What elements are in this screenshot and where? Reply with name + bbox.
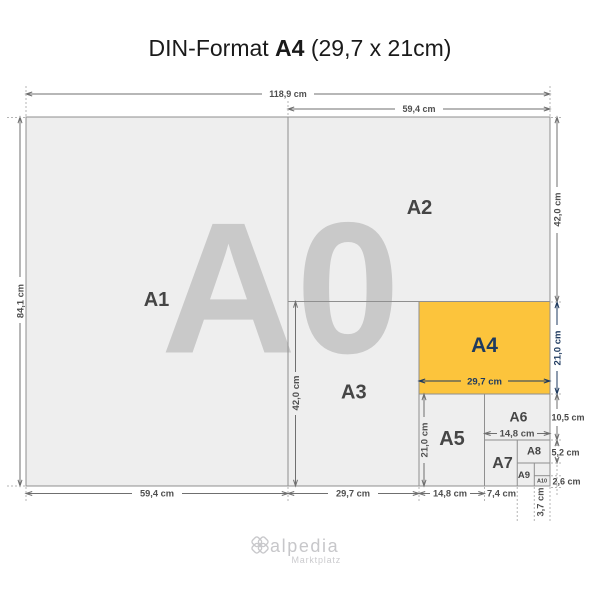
svg-text:2,6 cm: 2,6 cm bbox=[553, 477, 581, 487]
svg-text:A1: A1 bbox=[144, 289, 170, 311]
svg-text:29,7 cm: 29,7 cm bbox=[336, 489, 370, 499]
svg-text:A0: A0 bbox=[161, 184, 400, 393]
svg-text:3,7 cm: 3,7 cm bbox=[536, 488, 546, 517]
svg-text:10,5 cm: 10,5 cm bbox=[552, 413, 585, 423]
svg-text:14,8 cm: 14,8 cm bbox=[433, 489, 467, 499]
svg-text:7,4 cm: 7,4 cm bbox=[487, 489, 516, 499]
svg-text:59,4 cm: 59,4 cm bbox=[140, 489, 174, 499]
svg-text:14,8 cm: 14,8 cm bbox=[500, 429, 535, 440]
svg-text:42,0 cm: 42,0 cm bbox=[291, 376, 302, 411]
svg-text:A2: A2 bbox=[407, 197, 433, 219]
svg-text:42,0 cm: 42,0 cm bbox=[553, 192, 563, 226]
svg-text:5,2 cm: 5,2 cm bbox=[552, 448, 580, 458]
svg-text:21,0 cm: 21,0 cm bbox=[553, 331, 564, 366]
svg-text:A10: A10 bbox=[537, 478, 547, 484]
svg-text:A3: A3 bbox=[341, 382, 367, 404]
svg-text:118,9 cm: 118,9 cm bbox=[269, 89, 307, 99]
svg-text:84,1 cm: 84,1 cm bbox=[16, 284, 26, 318]
svg-text:21,0 cm: 21,0 cm bbox=[420, 423, 431, 458]
svg-text:Marktplatz: Marktplatz bbox=[291, 555, 341, 565]
svg-text:A7: A7 bbox=[492, 455, 513, 472]
svg-text:A5: A5 bbox=[439, 428, 465, 450]
svg-text:A6: A6 bbox=[510, 409, 528, 425]
svg-text:A4: A4 bbox=[471, 334, 498, 357]
svg-text:59,4 cm: 59,4 cm bbox=[402, 104, 435, 114]
svg-text:A9: A9 bbox=[518, 470, 530, 481]
svg-text:29,7 cm: 29,7 cm bbox=[467, 376, 502, 387]
svg-text:DIN-Format A4 (29,7 x 21cm): DIN-Format A4 (29,7 x 21cm) bbox=[149, 35, 452, 61]
svg-text:A8: A8 bbox=[527, 446, 541, 458]
svg-text:alpedia: alpedia bbox=[270, 536, 339, 556]
